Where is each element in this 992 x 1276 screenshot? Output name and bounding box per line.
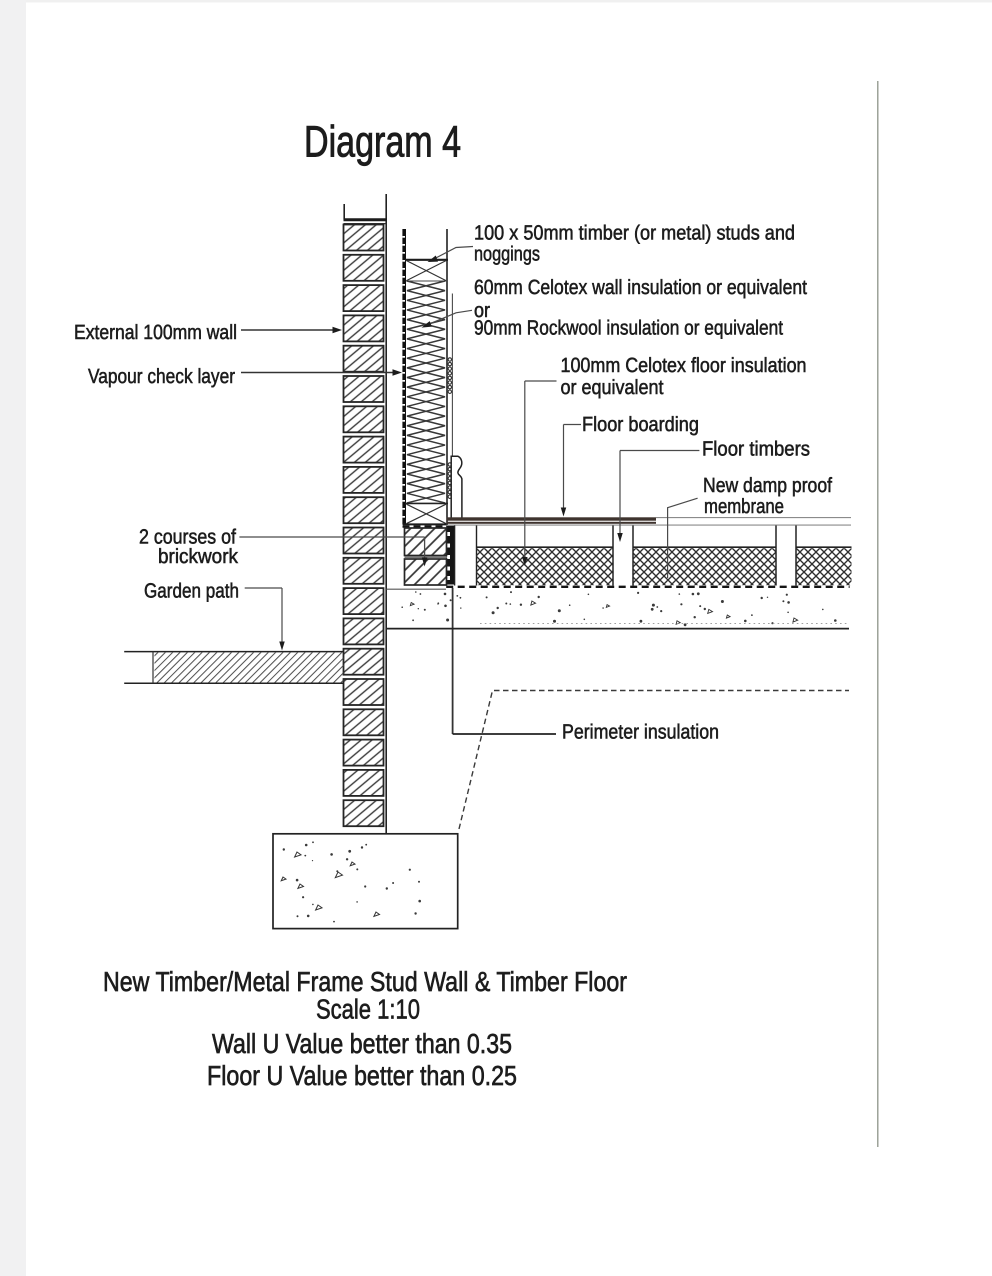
svg-text:Diagram 4: Diagram 4 <box>304 118 461 167</box>
svg-text:New damp proof: New damp proof <box>703 474 832 497</box>
svg-text:Floor boarding: Floor boarding <box>582 413 699 436</box>
svg-text:Scale 1:10: Scale 1:10 <box>316 994 420 1025</box>
svg-text:Garden path: Garden path <box>144 580 239 603</box>
svg-text:100mm Celotex floor insulation: 100mm Celotex floor insulation <box>561 354 807 377</box>
svg-text:or equivalent: or equivalent <box>561 376 664 399</box>
svg-text:Wall U Value better than 0.35: Wall U Value better than 0.35 <box>212 1028 512 1059</box>
svg-text:noggings: noggings <box>474 243 540 266</box>
svg-text:60mm Celotex wall insulation o: 60mm Celotex wall insulation or equivale… <box>474 276 807 299</box>
svg-text:brickwork: brickwork <box>158 545 239 568</box>
svg-text:membrane: membrane <box>704 495 784 518</box>
svg-text:External 100mm wall: External 100mm wall <box>74 321 237 344</box>
svg-text:New Timber/Metal Frame Stud Wa: New Timber/Metal Frame Stud Wall & Timbe… <box>103 966 627 997</box>
svg-text:100 x 50mm timber (or metal) s: 100 x 50mm timber (or metal) studs and <box>474 222 795 245</box>
svg-text:Vapour check layer: Vapour check layer <box>88 365 235 388</box>
svg-text:90mm Rockwool insulation or eq: 90mm Rockwool insulation or equivalent <box>474 317 783 340</box>
svg-text:Floor timbers: Floor timbers <box>702 438 810 461</box>
svg-text:Perimeter insulation: Perimeter insulation <box>562 721 719 744</box>
svg-text:Floor U Value better than 0.25: Floor U Value better than 0.25 <box>207 1060 517 1091</box>
